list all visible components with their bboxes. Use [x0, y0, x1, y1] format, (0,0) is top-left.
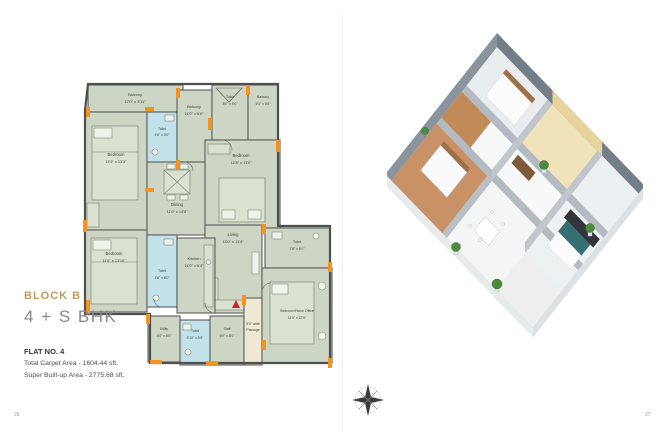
- room-dims: 5'1" x 5'5": [256, 102, 272, 106]
- room-label: Bedroom: [106, 251, 124, 256]
- block-title: BLOCK B: [24, 290, 164, 302]
- room-dims: 11'0" x 13'10": [102, 258, 126, 263]
- room-dims: 5'10" x 5'9": [187, 336, 205, 340]
- room-toilet-5: Toilet 7'8" x 5'0": [265, 228, 330, 268]
- room-label: Living: [228, 232, 240, 237]
- room-dims: 11'0" x 13'3": [105, 159, 127, 164]
- room-label: Toilet: [158, 269, 166, 273]
- room-label: Toilet: [191, 329, 199, 333]
- room-label: Bedroom: [233, 153, 251, 158]
- room-label: Toilet: [293, 240, 301, 244]
- room-toilet-1: Toilet 4'6" x 8'0": [147, 112, 177, 162]
- room-dims: 11'0" x 14'8": [166, 209, 188, 214]
- room-label: Kitchen: [188, 256, 201, 261]
- room-bedroom-1: Bedroom 11'0" x 13'3": [85, 112, 147, 230]
- room-label: Bedroom/Home Office: [280, 309, 314, 313]
- room-dims: 4'6" x 8'0": [155, 276, 171, 280]
- room-bedroom-home-office: Bedroom/Home Office 11'0" x 12'0": [262, 268, 332, 363]
- room-dims: 6'0" x 8'0": [220, 334, 236, 338]
- page-number-right: 27: [645, 412, 651, 418]
- room-dims: 13'0" x 14'9": [222, 239, 244, 244]
- room-label: Dining: [171, 202, 184, 207]
- room-bedroom-2: Bedroom 12'8" x 11'0": [205, 140, 280, 228]
- room-label: Toilet: [158, 127, 166, 131]
- passage-label2: Passage: [246, 328, 259, 332]
- room-dims: 8'0" x 5'0": [223, 102, 239, 106]
- passage-label: 5'0" wide: [246, 322, 260, 326]
- room-label: Balcony: [128, 92, 142, 97]
- room-label: Balcony: [257, 95, 269, 99]
- room-toilet-2: Toilet 8'0" x 5'0": [212, 85, 248, 140]
- room-dims: 11'0" x 8'0": [185, 111, 205, 116]
- room-label: Toilet: [226, 95, 234, 99]
- unit-type: 4 + S BHK: [24, 307, 164, 327]
- room-dims: 11'0" x 8'3": [185, 263, 205, 268]
- room-dims: 12'8" x 11'0": [230, 160, 252, 165]
- room-label: Balcony: [187, 104, 201, 109]
- builtup-area: Super Built-up Area - 2775.68 sft.: [24, 371, 164, 380]
- carpet-area: Total Carpet Area - 1604.44 sft.: [24, 359, 164, 368]
- render-3d: [387, 33, 643, 337]
- room-dims: 11'0" x 12'0": [288, 316, 307, 320]
- room-balcony-top: Balcony 17'0" x 3'11": [88, 85, 183, 112]
- page-number-left: 26: [14, 412, 20, 418]
- room-dining: Dining 11'0" x 14'8": [147, 162, 205, 235]
- room-staff: Staff 6'0" x 8'0": [210, 316, 244, 365]
- room-label: Bedroom: [108, 152, 126, 157]
- room-dims: 17'0" x 3'11": [124, 99, 146, 104]
- compass-icon: [352, 384, 384, 416]
- brochure-page: Balcony 17'0" x 3'11" Bedroom 11'0" x 13…: [0, 0, 664, 447]
- room-passage: 5'0" wide Passage: [244, 298, 262, 365]
- room-dims: 4'6" x 8'0": [155, 133, 171, 137]
- flat-number: FLAT NO. 4: [24, 347, 164, 356]
- room-label: Staff: [224, 327, 231, 331]
- room-toilet-4: Toilet 5'10" x 5'9": [180, 320, 210, 365]
- room-balcony-small: Balcony 5'1" x 5'5": [248, 85, 278, 140]
- room-dims: 7'8" x 5'0": [290, 247, 306, 251]
- unit-info-block: BLOCK B 4 + S BHK FLAT NO. 4 Total Carpe…: [24, 290, 164, 380]
- room-kitchen: Kitchen 11'0" x 8'3": [177, 238, 215, 313]
